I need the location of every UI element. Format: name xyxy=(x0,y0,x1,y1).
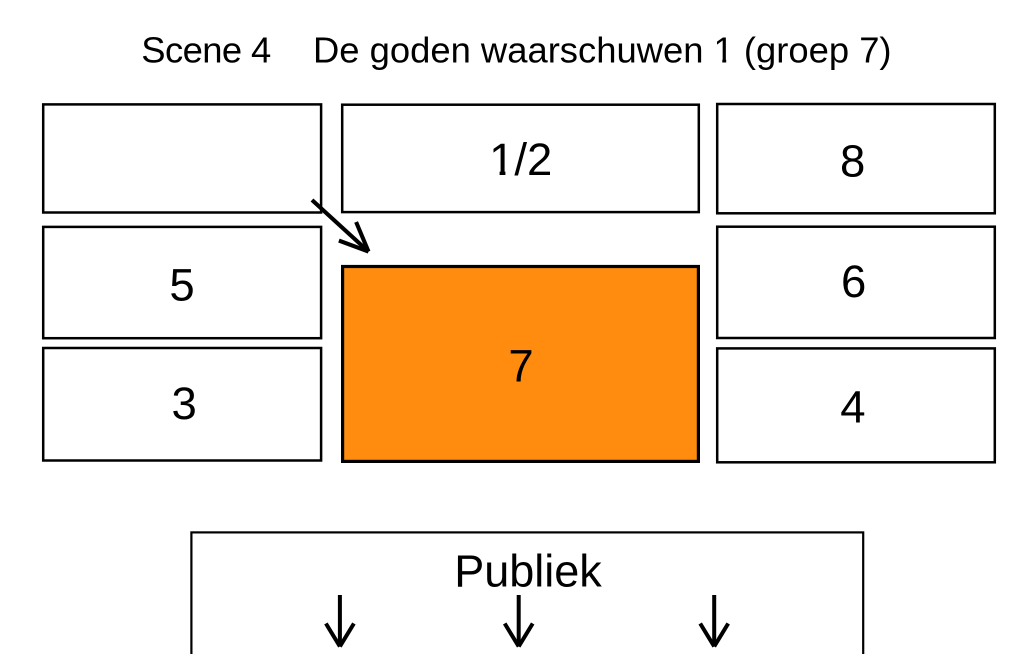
svg-text:Scene 4: Scene 4 xyxy=(141,29,271,70)
svg-text:6: 6 xyxy=(841,256,866,307)
svg-text:8: 8 xyxy=(840,136,865,187)
svg-text:4: 4 xyxy=(840,382,865,433)
svg-text:5: 5 xyxy=(169,259,194,310)
svg-text:7: 7 xyxy=(508,340,533,391)
svg-text:1/2: 1/2 xyxy=(489,134,552,185)
svg-text:Publiek: Publiek xyxy=(454,546,602,597)
svg-text:3: 3 xyxy=(171,378,196,429)
svg-text:De goden waarschuwen 1 (groep: De goden waarschuwen 1 (groep 7) xyxy=(313,29,892,70)
